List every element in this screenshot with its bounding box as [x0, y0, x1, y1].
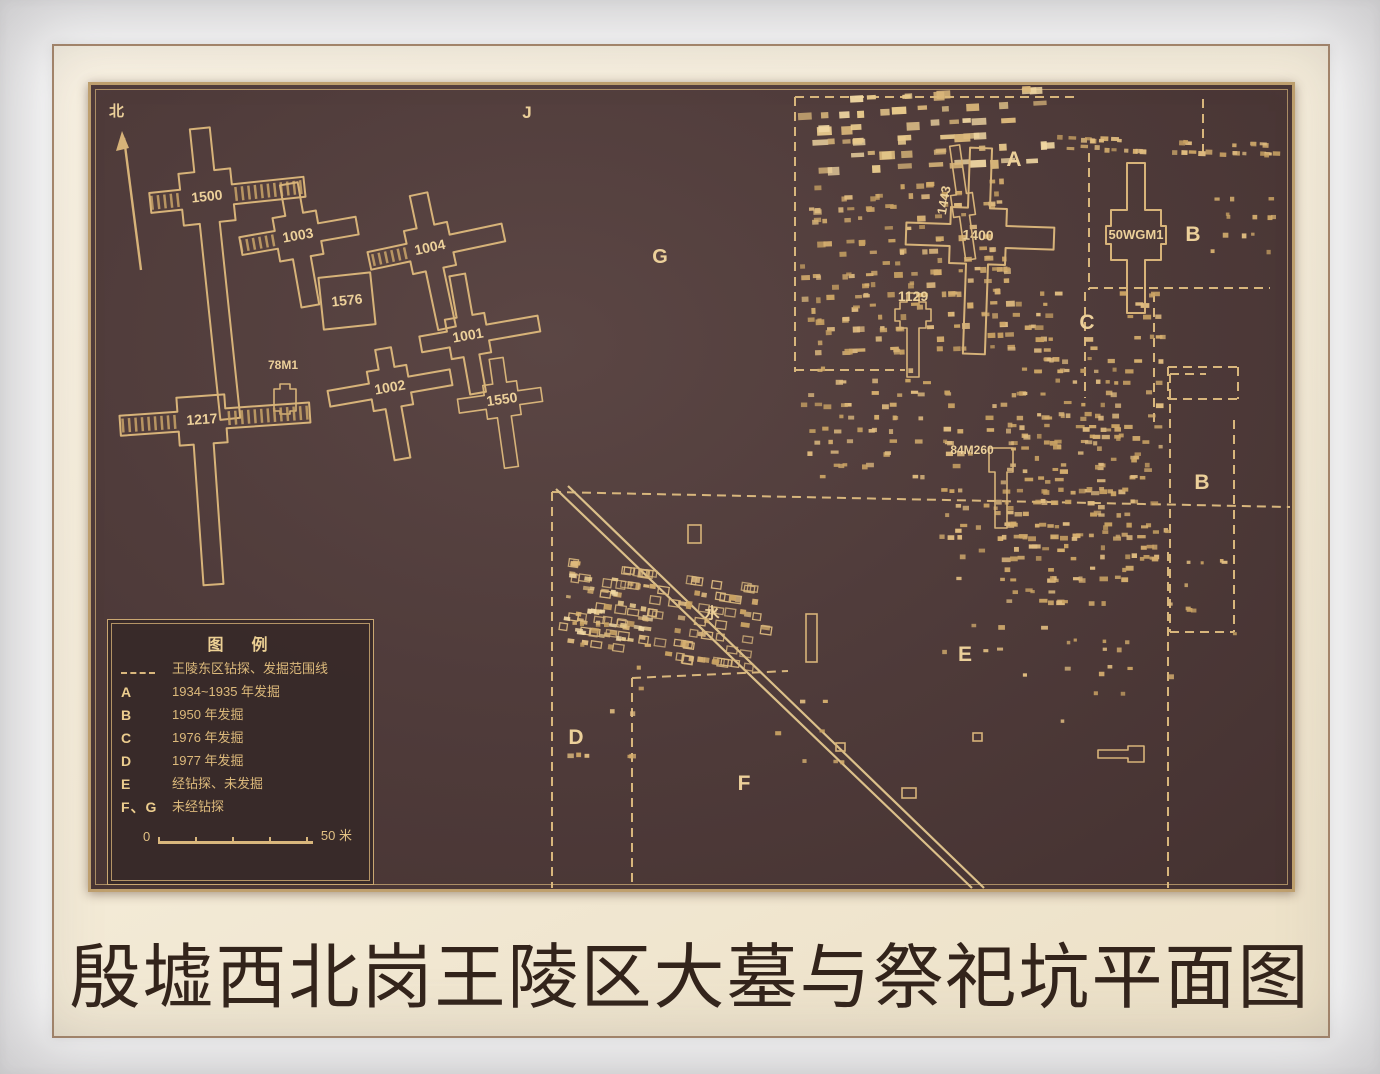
legend-symbol: C: [121, 730, 163, 748]
legend-label: 1977 年发掘: [172, 753, 244, 769]
legend-item: F、G未经钻探: [121, 799, 360, 817]
legend-symbol: F、G: [121, 799, 163, 817]
legend-item: D1977 年发掘: [121, 753, 360, 771]
legend-item: A1934~1935 年发掘: [121, 684, 360, 702]
scale-bar-line: [158, 837, 313, 844]
boundary-line-symbol: [121, 672, 155, 674]
legend-symbol: A: [121, 684, 163, 702]
legend-symbol: B: [121, 707, 163, 725]
legend-box: 图 例 王陵东区钻探、发掘范围线A1934~1935 年发掘B1950 年发掘C…: [107, 619, 374, 885]
legend-symbol: D: [121, 753, 163, 771]
legend-label: 1934~1935 年发掘: [172, 684, 280, 700]
legend-symbol: E: [121, 776, 163, 794]
legend-item: C1976 年发掘: [121, 730, 360, 748]
legend-items: 王陵东区钻探、发掘范围线A1934~1935 年发掘B1950 年发掘C1976…: [121, 661, 360, 817]
scale-start-label: 0: [143, 829, 150, 844]
scale-end-label: 50 米: [321, 825, 352, 844]
plaque-caption: 殷墟西北岗王陵区大墓与祭祀坑平面图: [58, 921, 1322, 1023]
legend-item: B1950 年发掘: [121, 707, 360, 725]
legend-title: 图 例: [121, 631, 360, 655]
legend-label: 1976 年发掘: [172, 730, 244, 746]
legend-item: E经钻探、未发掘: [121, 776, 360, 794]
legend-label: 未经钻探: [172, 799, 224, 815]
legend-item: 王陵东区钻探、发掘范围线: [121, 661, 360, 679]
legend-label: 1950 年发掘: [172, 707, 244, 723]
legend-label: 王陵东区钻探、发掘范围线: [172, 661, 328, 677]
legend-label: 经钻探、未发掘: [172, 776, 263, 792]
scale-bar: 0 50 米: [121, 825, 360, 844]
framed-plaque-photo: 150010031004157610011002155078M112171400…: [0, 0, 1380, 1074]
legend-symbol: [121, 661, 163, 679]
